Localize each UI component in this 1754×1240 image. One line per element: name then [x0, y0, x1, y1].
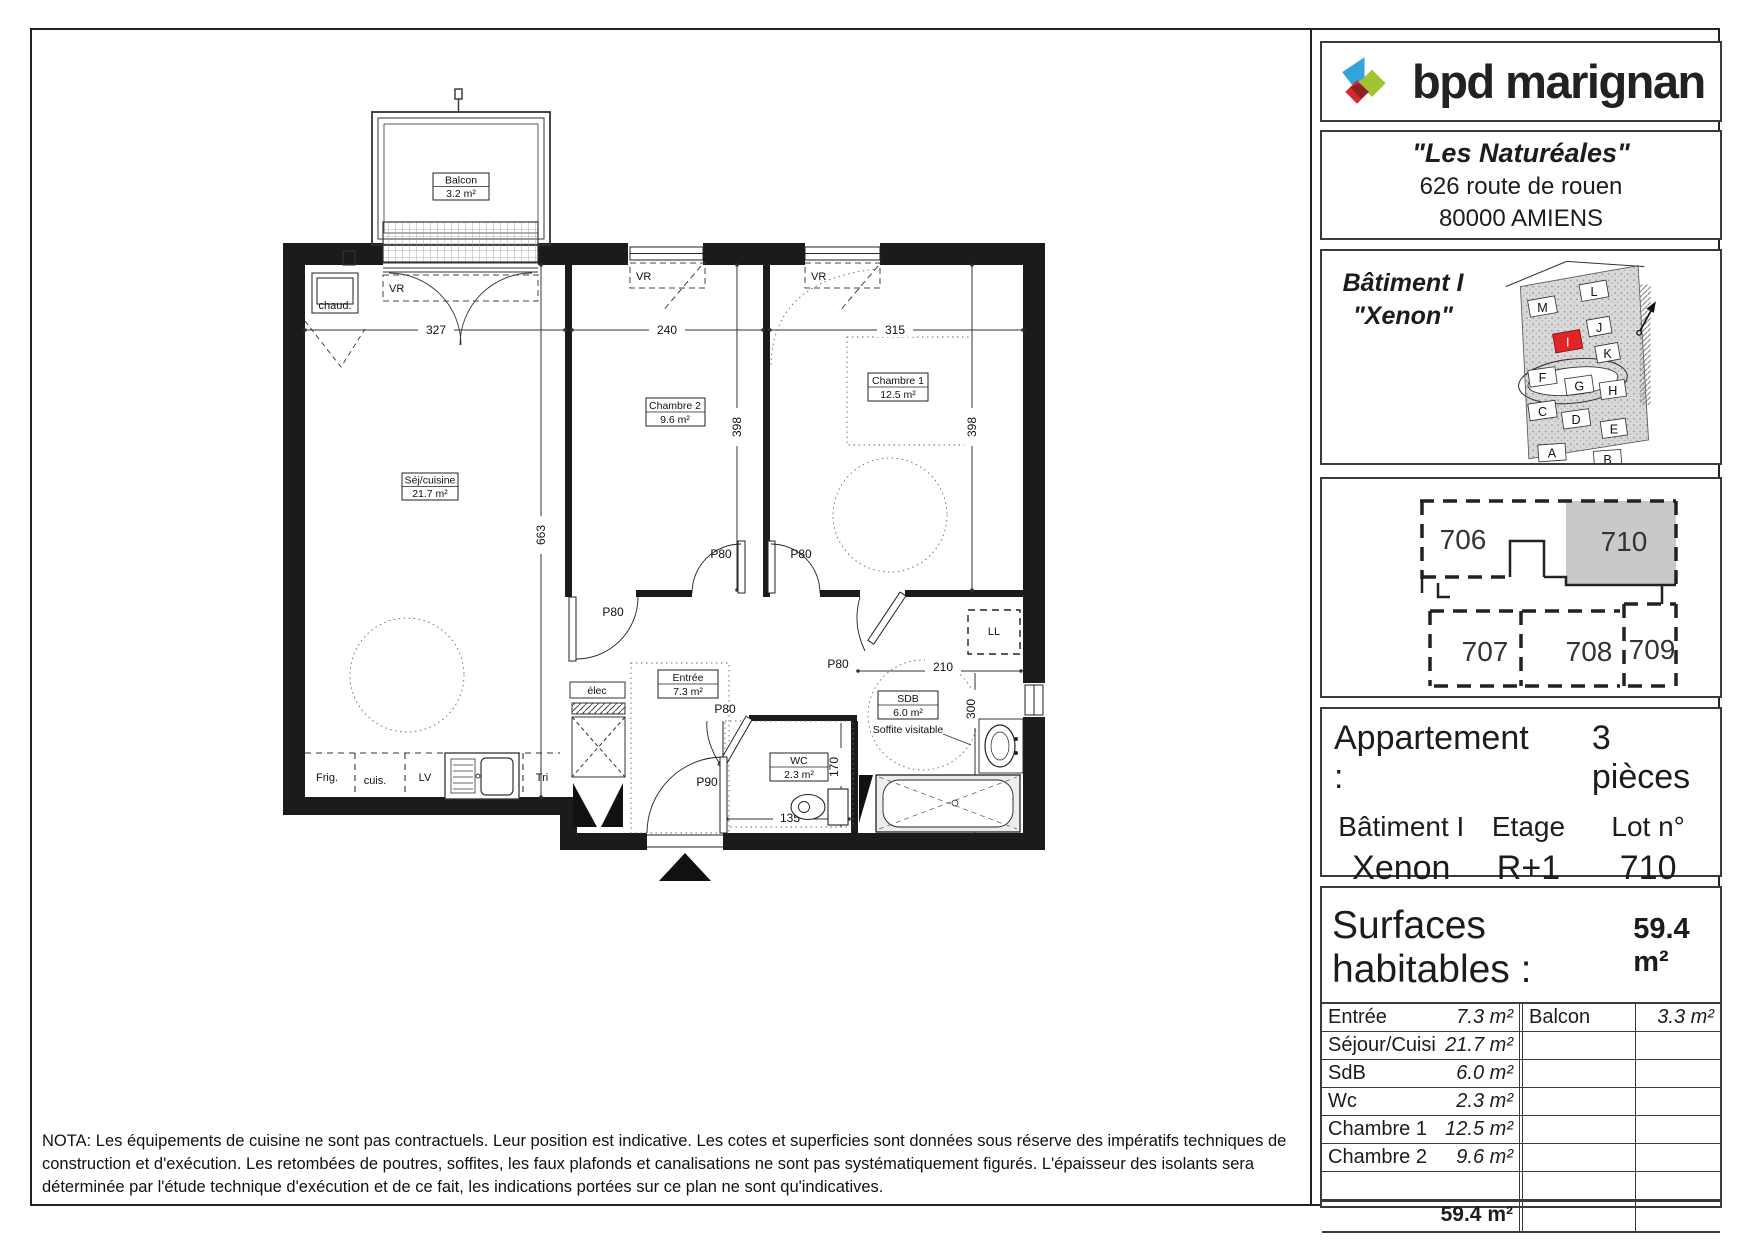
dim-ch-depth: 398 — [730, 417, 744, 437]
svg-text:21.7 m²: 21.7 m² — [412, 488, 448, 500]
svg-text:3.2 m²: 3.2 m² — [446, 188, 476, 200]
site-block-d: D — [1572, 413, 1581, 427]
washbasin — [985, 725, 1015, 767]
electrical-closet — [570, 682, 625, 827]
table-total-row: 59.4 m² — [1322, 1200, 1720, 1233]
building-value: Xenon — [1334, 849, 1469, 888]
door-p90: P90 — [696, 775, 718, 789]
logo-wordmark: bpd marignan — [1412, 54, 1705, 109]
kitchen — [305, 753, 560, 799]
svg-text:SDB: SDB — [897, 693, 919, 705]
key-plan-box: 706 710 707 708 709 — [1320, 477, 1722, 698]
building-label: Bâtiment I — [1334, 811, 1469, 843]
apartment-type-value: 3 pièces — [1592, 719, 1708, 797]
project-address-line2: 80000 AMIENS — [1322, 205, 1720, 233]
floor-plan-drawing: VR VR VR chaud. — [255, 75, 1065, 905]
project-address-line1: 626 route de rouen — [1322, 173, 1720, 201]
room-label-entree: Entrée 7.3 m² — [658, 670, 718, 698]
toilet-bowl — [791, 795, 825, 820]
bpd-marignan-logo-icon — [1336, 51, 1398, 113]
door-p80: P80 — [710, 547, 732, 561]
svg-text:Balcon: Balcon — [445, 175, 477, 187]
balcony-railing-hatch — [383, 222, 538, 262]
site-block-k: K — [1603, 347, 1612, 361]
balcony — [372, 89, 550, 345]
svg-text:Chambre 2: Chambre 2 — [649, 400, 701, 412]
elec-label: élec — [587, 685, 606, 697]
room-label-sdb: SDB 6.0 m² Soffite visitable — [873, 691, 971, 745]
sorting-label: Tri — [536, 772, 548, 784]
building-box: Bâtiment I "Xenon" — [1320, 249, 1722, 465]
key-unit-710: 710 — [1601, 526, 1648, 557]
table-row: Wc2.3 m² — [1322, 1088, 1720, 1116]
svg-text:9.6 m²: 9.6 m² — [660, 414, 690, 426]
key-unit-707: 707 — [1462, 636, 1509, 667]
boiler-label: chaud. — [318, 300, 351, 312]
site-block-l: L — [1590, 285, 1597, 299]
svg-text:7.3 m²: 7.3 m² — [673, 686, 703, 698]
site-block-e: E — [1610, 423, 1618, 437]
door-p80: P80 — [714, 702, 736, 716]
dim-sdb-depth: 300 — [964, 699, 978, 719]
project-address-box: "Les Naturéales" 626 route de rouen 8000… — [1320, 130, 1722, 240]
dishwasher-label: LV — [419, 772, 432, 784]
apartment-info-box: Appartement : 3 pièces Bâtiment I Etage … — [1320, 707, 1722, 877]
key-plan-drawing: 706 710 707 708 709 — [1322, 479, 1720, 696]
apartment-type-label: Appartement : — [1334, 719, 1530, 797]
dim-sej-width: 327 — [426, 323, 446, 337]
nota-disclaimer: NOTA: Les équipements de cuisine ne sont… — [42, 1130, 1298, 1198]
site-block-a: A — [1548, 447, 1557, 461]
room-label-chambre1: Chambre 1 12.5 m² — [868, 373, 928, 401]
table-row: Séjour/Cuisine21.7 m² — [1322, 1032, 1720, 1060]
table-row: Chambre 29.6 m² — [1322, 1144, 1720, 1172]
building-name: Bâtiment I — [1328, 267, 1478, 300]
table-row: Chambre 112.5 m² — [1322, 1116, 1720, 1144]
date-label: Date : 10 mars 2016 — [1322, 1233, 1720, 1240]
soffit-note: Soffite visitable — [873, 724, 944, 736]
dim-wc-depth: 170 — [827, 757, 841, 777]
site-block-f: F — [1539, 371, 1547, 385]
windows — [630, 247, 1043, 715]
dimension-lines — [305, 265, 1023, 831]
dim-ch-depth: 398 — [965, 417, 979, 437]
panel-divider — [1310, 28, 1312, 1206]
floor-plan-sheet: VR VR VR chaud. — [0, 0, 1754, 1240]
svg-text:Chambre 1: Chambre 1 — [872, 375, 924, 387]
dotted-furniture — [350, 269, 978, 833]
site-block-g: G — [1574, 380, 1584, 394]
floor-label: Etage — [1469, 811, 1589, 843]
site-map: M L J K I F G H C D E A B — [1472, 253, 1697, 463]
site-block-h: H — [1608, 384, 1617, 398]
surfaces-total-value: 59.4 m² — [1436, 1202, 1519, 1231]
svg-text:Séj/cuisine: Séj/cuisine — [405, 475, 456, 487]
svg-text:Entrée: Entrée — [673, 672, 704, 684]
key-unit-708: 708 — [1566, 636, 1613, 667]
site-block-i: I — [1566, 335, 1570, 349]
room-label-chambre2: Chambre 2 9.6 m² — [646, 398, 705, 426]
dimension-ticks — [303, 263, 1025, 833]
vr-label: VR — [636, 271, 651, 283]
title-block-panel: bpd marignan "Les Naturéales" 626 route … — [1320, 0, 1722, 1240]
site-block-m: M — [1537, 301, 1548, 315]
dim-ch2-width: 240 — [657, 323, 677, 337]
table-row — [1322, 1172, 1720, 1200]
surfaces-box: Surfaces habitables : 59.4 m² Entrée7.3 … — [1320, 886, 1722, 1208]
washing-machine-label: LL — [988, 626, 1000, 638]
vr-label: VR — [389, 283, 404, 295]
cooker-label: cuis. — [364, 775, 387, 787]
vr-label: VR — [811, 271, 826, 283]
lot-value: 710 — [1588, 849, 1708, 888]
lot-label: Lot n° — [1588, 811, 1708, 843]
site-block-c: C — [1538, 405, 1547, 419]
room-label-wc: WC 2.3 m² — [770, 753, 828, 781]
dim-ch1-width: 315 — [885, 323, 905, 337]
dim-sej-depth: 663 — [534, 525, 548, 545]
floor-value: R+1 — [1469, 849, 1589, 888]
surfaces-table: Entrée7.3 m² Balcon3.3 m² Séjour/Cuisine… — [1322, 1002, 1720, 1233]
door-p80: P80 — [827, 657, 849, 671]
table-row: SdB6.0 m² — [1322, 1060, 1720, 1088]
svg-text:2.3 m²: 2.3 m² — [784, 769, 814, 781]
surfaces-title: Surfaces habitables : — [1332, 904, 1619, 992]
room-label-sejour: Séj/cuisine 21.7 m² — [402, 473, 458, 500]
table-row: Entrée7.3 m² Balcon3.3 m² — [1322, 1004, 1720, 1032]
svg-text:6.0 m²: 6.0 m² — [893, 707, 923, 719]
dim-sdb-width: 210 — [933, 660, 953, 674]
key-unit-706: 706 — [1440, 524, 1487, 555]
window-roller-boxes — [383, 263, 880, 312]
svg-text:12.5 m²: 12.5 m² — [880, 389, 916, 401]
entrance-arrow — [659, 853, 711, 881]
project-name: "Les Naturéales" — [1322, 138, 1720, 169]
fridge-label: Frig. — [316, 772, 338, 784]
building-codename: "Xenon" — [1328, 300, 1478, 333]
site-block-j: J — [1596, 321, 1602, 335]
toilet-tank — [828, 789, 848, 825]
door-p80: P80 — [790, 547, 812, 561]
site-block-b: B — [1603, 453, 1611, 463]
door-p80: P80 — [602, 605, 624, 619]
surfaces-total-header: 59.4 m² — [1633, 913, 1712, 979]
key-unit-709: 709 — [1629, 634, 1676, 665]
room-label-balcon: Balcon 3.2 m² — [433, 173, 489, 200]
logo-box: bpd marignan — [1320, 41, 1722, 122]
svg-text:WC: WC — [790, 755, 808, 767]
